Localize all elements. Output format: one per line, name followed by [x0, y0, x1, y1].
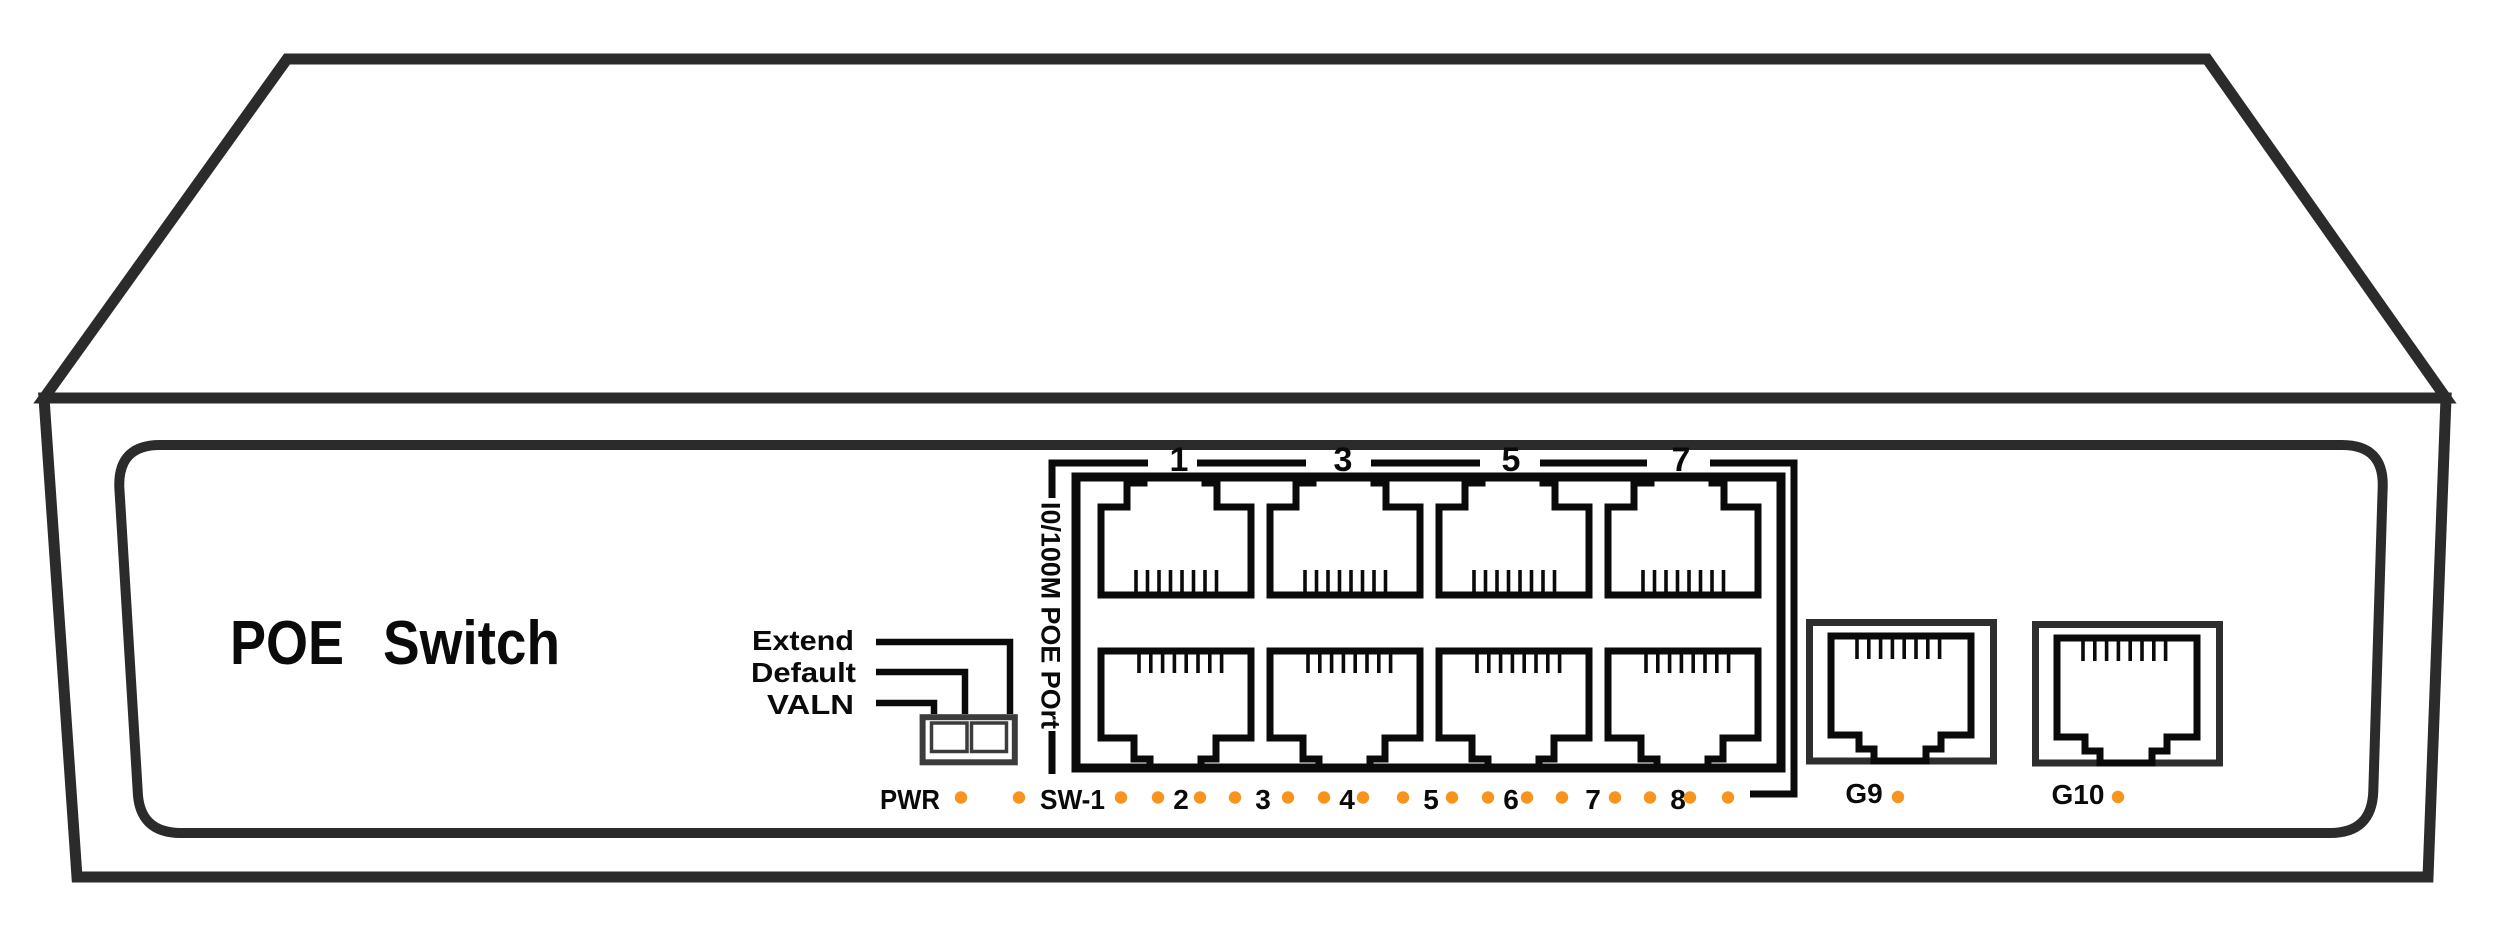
svg-text:8: 8: [1670, 784, 1686, 815]
svg-text:Default: Default: [751, 657, 856, 688]
svg-text:7: 7: [1585, 784, 1601, 815]
svg-text:Switch: Switch: [383, 608, 560, 678]
svg-text:2: 2: [1173, 784, 1189, 815]
svg-text:6: 6: [1503, 784, 1519, 815]
svg-text:G10: G10: [2052, 779, 2105, 810]
svg-text:Extend: Extend: [752, 625, 854, 656]
svg-text:VALN: VALN: [767, 689, 854, 720]
svg-text:5: 5: [1423, 784, 1439, 815]
svg-text:3: 3: [1255, 784, 1271, 815]
svg-text:SW-1: SW-1: [1040, 784, 1105, 815]
svg-text:I0/100M POE POrt: I0/100M POE POrt: [1036, 502, 1066, 729]
svg-text:G9: G9: [1845, 778, 1882, 809]
svg-text:4: 4: [1339, 784, 1355, 815]
svg-text:PWR: PWR: [880, 784, 940, 815]
svg-text:POE: POE: [230, 608, 344, 678]
